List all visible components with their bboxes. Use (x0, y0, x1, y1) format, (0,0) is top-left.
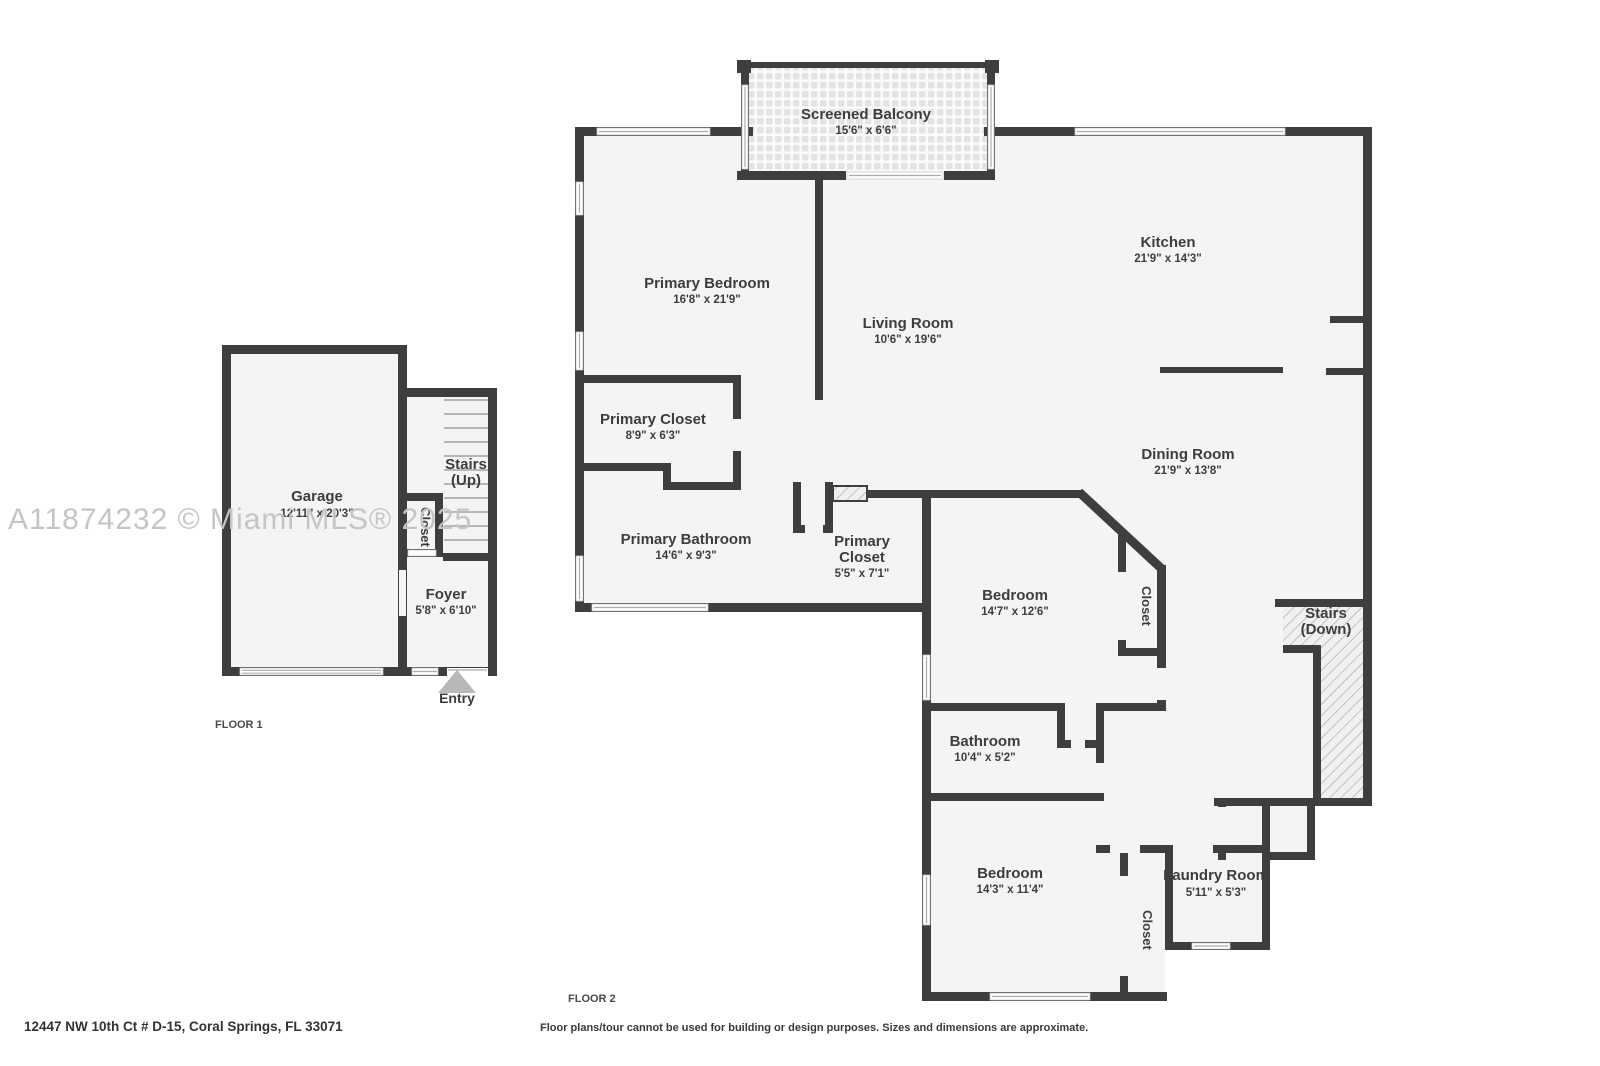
half-wall-hatch (833, 486, 867, 501)
primary-closet2-line2: Closet (839, 549, 885, 566)
garage-door (240, 668, 383, 675)
primary-closet1-dims: 8'9" x 6'3" (626, 430, 681, 442)
bedroom1-label: Bedroom (982, 587, 1048, 604)
balcony-label: Screened Balcony (801, 106, 932, 123)
stairs-down-label2: (Down) (1301, 621, 1352, 638)
dining-room-label: Dining Room (1141, 446, 1234, 463)
primary-bathroom-label: Primary Bathroom (621, 531, 752, 548)
kitchen-label: Kitchen (1140, 234, 1195, 251)
floorplan-page: A11874232 © Miami MLS® 2025 (0, 0, 1600, 1066)
dining-room-dims: 21'9" x 13'8" (1154, 465, 1222, 477)
garage-foyer-door (399, 570, 406, 616)
bedroom1-closet-label: Closet (1139, 586, 1154, 626)
bathroom-dims: 10'4" x 5'2" (954, 752, 1015, 764)
stairs-up-label: Stairs (445, 456, 487, 473)
floor1-plan: Garage 12'11" x 20'3" Stairs (Up) Closet… (215, 345, 497, 731)
living-room-label: Living Room (863, 315, 954, 332)
primary-closet2-dims: 5'5" x 7'1" (835, 568, 890, 580)
floor2-title: FLOOR 2 (568, 993, 616, 1005)
foyer-label: Foyer (426, 586, 467, 603)
stairs-down-hatch-lower (1321, 651, 1363, 798)
bathroom-label: Bathroom (950, 733, 1021, 750)
foyer-dims: 5'8" x 6'10" (415, 605, 476, 617)
laundry-dims: 5'11" x 5'3" (1186, 887, 1247, 899)
footer-address: 12447 NW 10th Ct # D-15, Coral Springs, … (24, 1019, 343, 1034)
bedroom2-label: Bedroom (977, 865, 1043, 882)
primary-bathroom-dims: 14'6" x 9'3" (655, 550, 716, 562)
stairs-down-label: Stairs (1305, 605, 1347, 622)
footer-disclaimer: Floor plans/tour cannot be used for buil… (540, 1022, 1088, 1034)
stairs-up-label2: (Up) (451, 472, 481, 489)
floor1-title: FLOOR 1 (215, 719, 263, 731)
primary-bedroom-dims: 16'8" x 21'9" (673, 294, 741, 306)
primary-closet2-line1: Primary (834, 533, 891, 550)
living-room-dims: 10'6" x 19'6" (874, 334, 942, 346)
closet1-door (408, 550, 436, 556)
mls-watermark: A11874232 © Miami MLS® 2025 (8, 503, 472, 537)
floor2-plan: Screened Balcony 15'6" x 6'6" Primary Be… (568, 60, 1372, 1005)
primary-closet1-label: Primary Closet (600, 411, 706, 428)
balcony-dims: 15'6" x 6'6" (835, 125, 896, 137)
bedroom2-closet-label: Closet (1140, 910, 1155, 950)
primary-bedroom-label: Primary Bedroom (644, 275, 770, 292)
bedroom2-dims: 14'3" x 11'4" (977, 884, 1044, 896)
kitchen-dims: 21'9" x 14'3" (1134, 253, 1202, 265)
entry-label: Entry (439, 690, 475, 706)
laundry-label: Laundry Room (1163, 867, 1269, 884)
bedroom1-dims: 14'7" x 12'6" (981, 606, 1049, 618)
